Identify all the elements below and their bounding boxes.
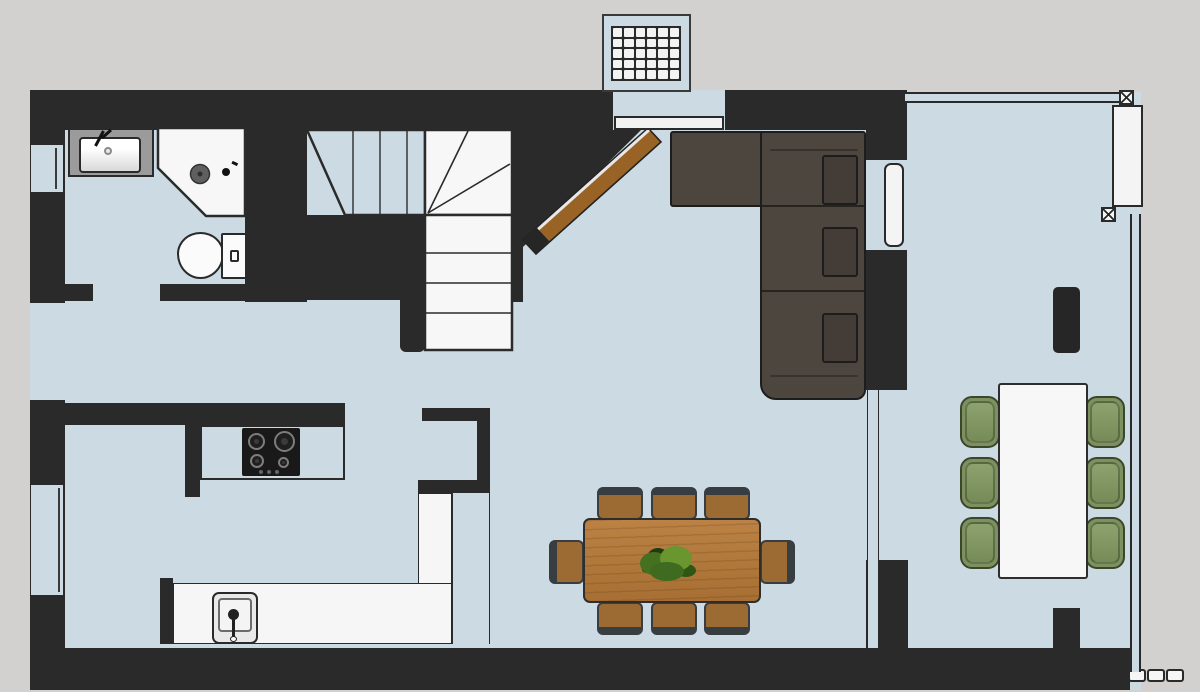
kitchen-faucet-base xyxy=(230,636,237,642)
dining-chair xyxy=(704,487,750,520)
kitchen-passage-strip xyxy=(452,493,490,644)
entry-mat-grid xyxy=(611,26,681,81)
partition-window-pane xyxy=(884,163,904,247)
wall-bathroom-bottom xyxy=(160,284,260,301)
green-chair xyxy=(1085,517,1125,569)
entry-mat-cell xyxy=(658,70,667,79)
burner-icon xyxy=(278,457,289,468)
wall-duct-bottom xyxy=(418,480,490,493)
window-left-top xyxy=(31,145,63,192)
entry-mat-cell xyxy=(624,39,633,48)
floor-plan-canvas xyxy=(0,0,1200,692)
sofa-back-cushion xyxy=(822,155,858,205)
green-chair xyxy=(1085,396,1125,448)
wall-kitchen-top xyxy=(63,403,345,425)
wall-under-stairs xyxy=(307,215,425,300)
entry-mat-cell xyxy=(624,60,633,69)
entry-mat-cell xyxy=(647,70,656,79)
sofa-back-cushion xyxy=(822,313,858,363)
entry-door-leaf xyxy=(614,116,724,130)
plant-centerpiece-leaf xyxy=(650,562,684,581)
corner-shower xyxy=(156,126,248,220)
sofa-back-cushion xyxy=(822,227,858,277)
wall-kitchen-stub xyxy=(185,425,200,497)
green-chair xyxy=(960,396,1000,448)
entry-mat-cell xyxy=(658,28,667,37)
entry-mat-cell xyxy=(613,70,622,79)
entry-mat-cell xyxy=(670,70,679,79)
entry-mat-cell xyxy=(636,39,645,48)
conservatory-table xyxy=(998,383,1088,579)
entry-mat-cell xyxy=(636,70,645,79)
burner-icon xyxy=(248,433,265,450)
wall-living-partition-mid xyxy=(866,250,907,390)
stair-ramp xyxy=(513,118,673,263)
window-left-kitchen-pane xyxy=(58,488,60,592)
entry-mat-cell xyxy=(658,60,667,69)
entry-mat-cell xyxy=(636,28,645,37)
kitchen-faucet-stem xyxy=(232,618,235,638)
green-chair xyxy=(1085,457,1125,509)
entry-mat-cell xyxy=(647,60,656,69)
entry-mat-cell xyxy=(636,49,645,58)
burner-icon xyxy=(274,431,295,452)
corner-post-top xyxy=(1119,90,1134,105)
window-left-top-pane xyxy=(55,148,57,189)
dining-chair xyxy=(597,602,643,635)
dining-chair xyxy=(760,540,795,584)
dining-chair xyxy=(549,540,584,584)
entry-mat-cell xyxy=(647,49,656,58)
wall-stair-stub xyxy=(400,300,425,352)
bottom-wall-light-3 xyxy=(1166,669,1184,682)
sofa-front-line xyxy=(770,375,858,377)
kitchen-tall-unit xyxy=(418,493,452,585)
dining-chair xyxy=(597,487,643,520)
wall-bathroom-door-stub xyxy=(65,284,93,301)
entry-mat-cell xyxy=(636,60,645,69)
sofa-back-line xyxy=(770,149,858,151)
cooktop-control-dot xyxy=(275,470,279,474)
l-shaped-sofa xyxy=(670,131,866,400)
cooktop-control-dot xyxy=(267,470,271,474)
entry-mat-cell xyxy=(624,49,633,58)
floor-vent xyxy=(1053,287,1080,353)
wall-bathroom-block xyxy=(245,130,307,302)
entry-mat-cell xyxy=(658,49,667,58)
dining-chair xyxy=(651,602,697,635)
bathroom-sink xyxy=(79,137,141,173)
entry-mat-cell xyxy=(647,28,656,37)
entry-mat-cell xyxy=(670,49,679,58)
glass-wall-right xyxy=(1130,214,1141,672)
green-chair xyxy=(960,457,1000,509)
bathroom-sink-drain xyxy=(104,147,112,155)
toilet-flush-button xyxy=(230,250,239,262)
wall-bottom-stub xyxy=(1053,608,1080,650)
kitchen-cooktop xyxy=(242,428,300,476)
dining-chair xyxy=(651,487,697,520)
glass-wall-top xyxy=(905,92,1131,103)
entry-mat-cell xyxy=(624,28,633,37)
open-door-leaf xyxy=(1112,105,1143,207)
entry-mat-cell xyxy=(647,39,656,48)
sofa-seam xyxy=(762,290,864,292)
entry-mat-cell xyxy=(613,28,622,37)
wall-counter-left-stub xyxy=(160,578,173,644)
burner-icon xyxy=(250,454,264,468)
bottom-wall-light-2 xyxy=(1147,669,1165,682)
entry-mat-cell xyxy=(670,39,679,48)
entry-mat-cell xyxy=(670,28,679,37)
sofa-seam xyxy=(762,205,864,207)
entry-mat-cell xyxy=(658,39,667,48)
entry-mat-cell xyxy=(624,70,633,79)
cooktop-control-dot xyxy=(259,470,263,474)
dining-chair xyxy=(704,602,750,635)
green-chair xyxy=(960,517,1000,569)
corner-post-mid xyxy=(1101,207,1116,222)
glass-partition-living xyxy=(867,390,879,648)
entry-mat-cell xyxy=(613,39,622,48)
entry-mat-cell xyxy=(613,49,622,58)
entry-mat-cell xyxy=(670,60,679,69)
entry-mat-cell xyxy=(613,60,622,69)
wall-bottom xyxy=(30,648,1130,690)
wall-living-partition-top xyxy=(866,93,907,160)
opening-left-middle xyxy=(30,303,65,400)
